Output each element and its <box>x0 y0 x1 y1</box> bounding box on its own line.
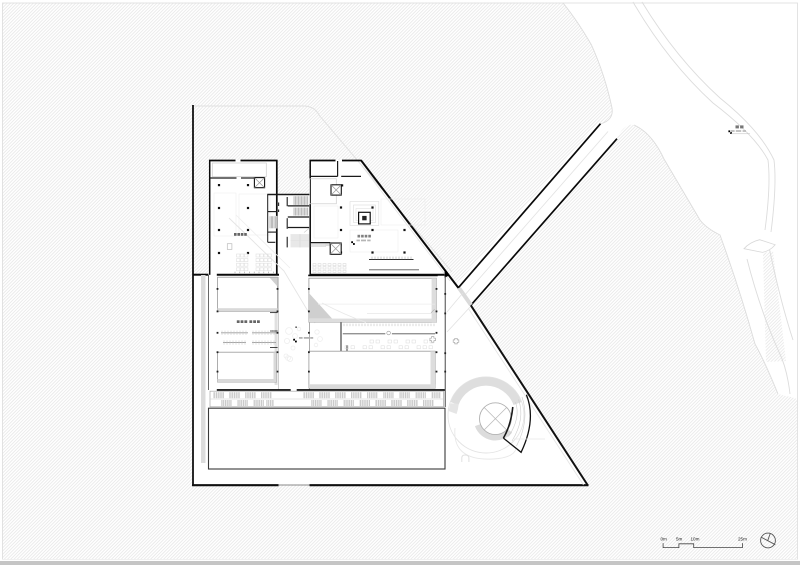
svg-text:10m: 10m <box>691 537 700 542</box>
svg-text:25m: 25m <box>738 537 747 542</box>
svg-text:0m: 0m <box>661 537 668 542</box>
svg-text:5m: 5m <box>676 537 683 542</box>
